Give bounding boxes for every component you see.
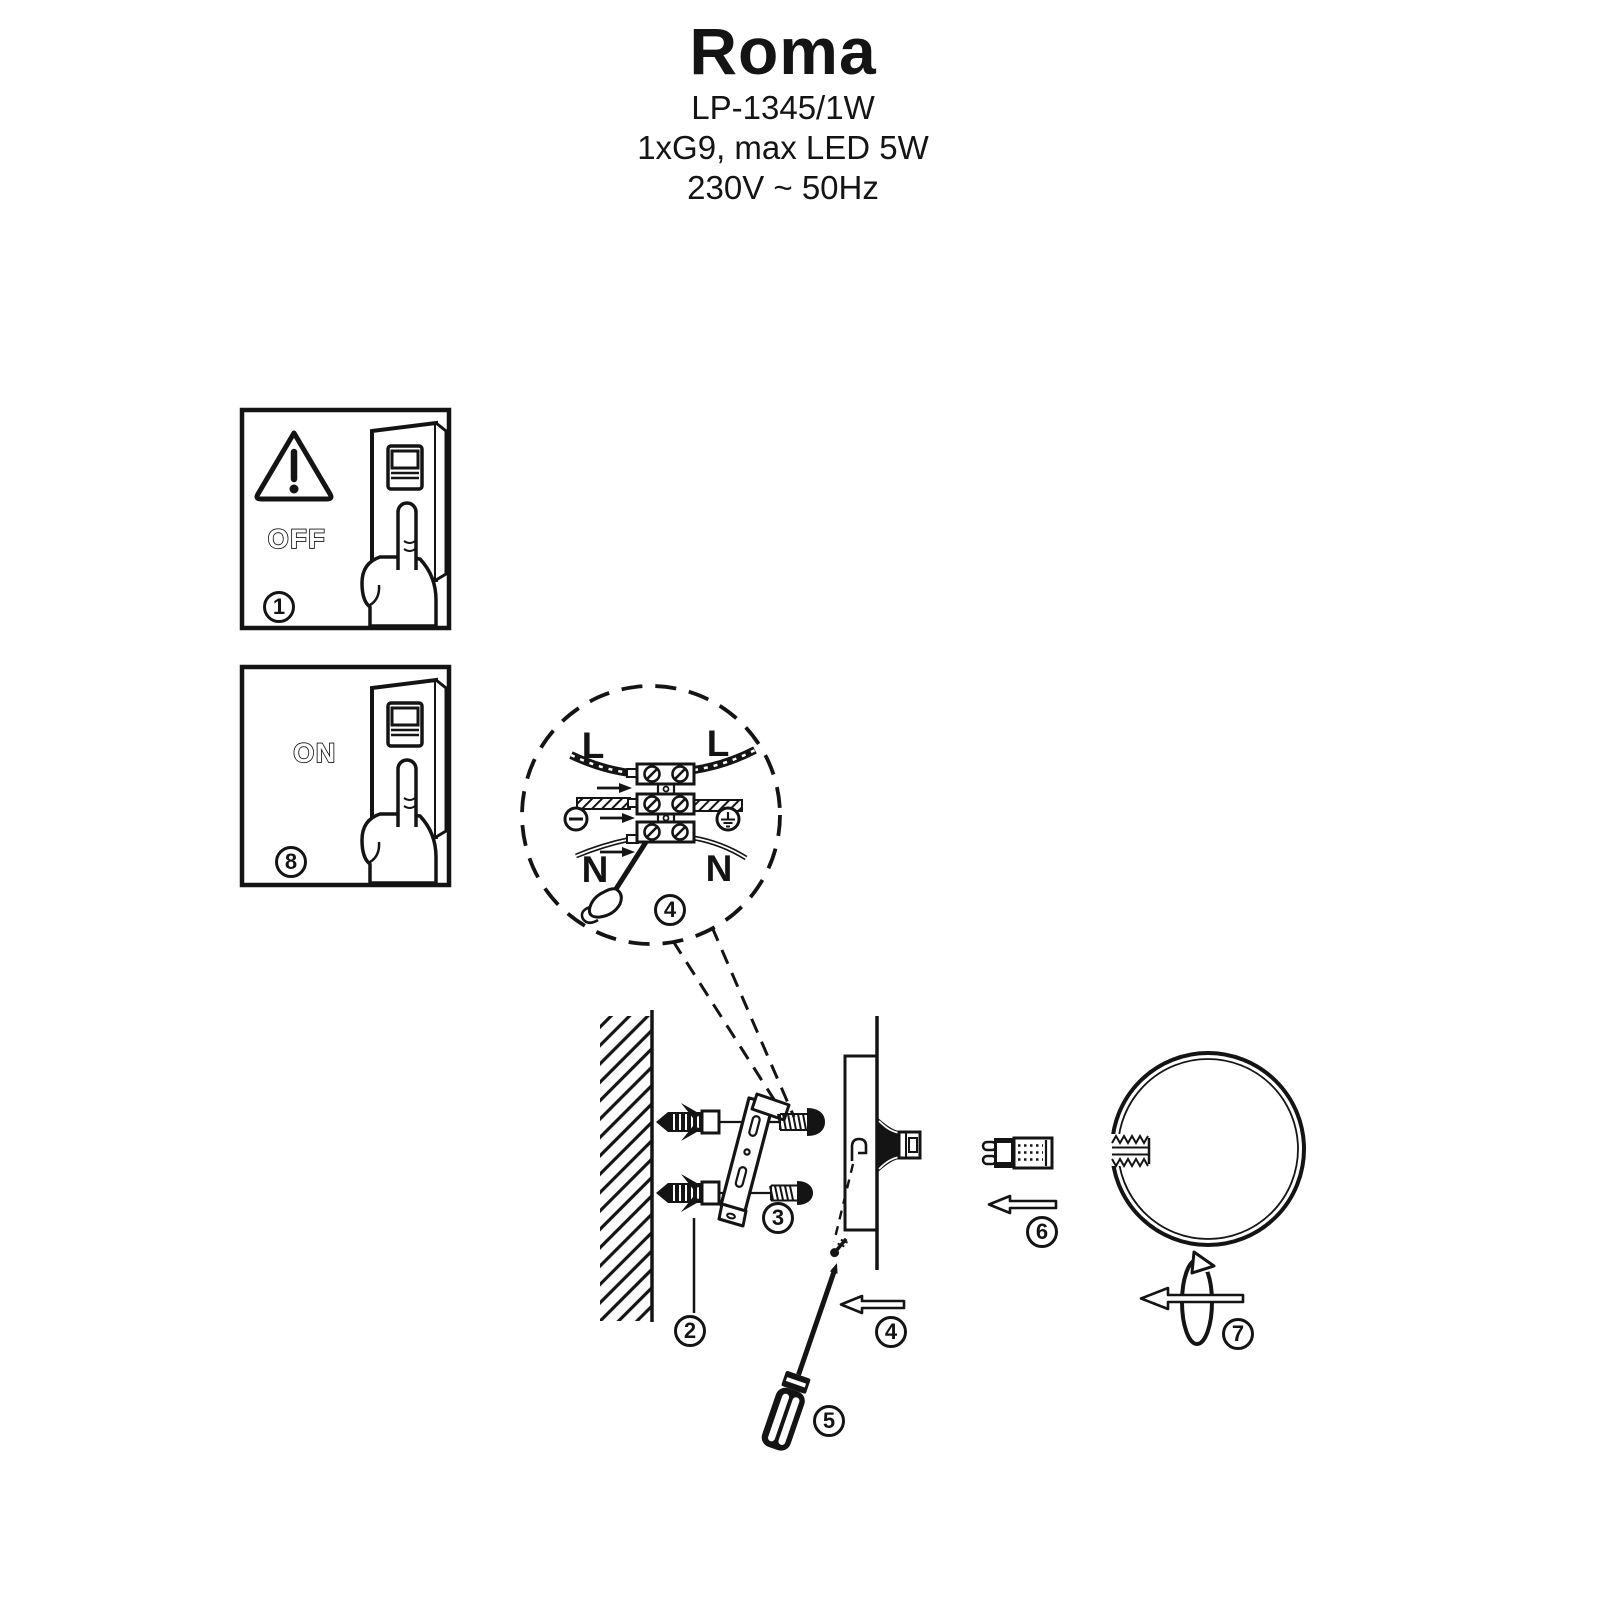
label-neutral-right: N bbox=[706, 848, 733, 889]
step-badge-off: 1 bbox=[263, 591, 295, 623]
step-badge-wiring: 4 bbox=[654, 894, 686, 926]
earth-symbol-icon bbox=[717, 808, 739, 830]
callout-line bbox=[673, 941, 782, 1112]
step-badge-shade: 7 bbox=[1222, 1318, 1254, 1350]
insert-arrow-icon bbox=[841, 1296, 904, 1313]
label-neutral-left: N bbox=[582, 849, 609, 890]
step-badge-on: 8 bbox=[275, 846, 307, 878]
step-badge-bulb: 6 bbox=[1026, 1216, 1058, 1248]
step-badge-bracket: 3 bbox=[762, 1202, 794, 1234]
power-on-panel: ON bbox=[242, 667, 449, 885]
insert-arrow-icon bbox=[989, 1196, 1056, 1213]
minus-symbol-icon bbox=[565, 808, 587, 830]
label-live-right: L bbox=[707, 723, 730, 764]
step-badge-anchor: 2 bbox=[674, 1315, 706, 1347]
label-live-left: L bbox=[582, 725, 605, 766]
installation-diagram: OFF ON bbox=[0, 0, 1600, 1600]
callout-line bbox=[712, 927, 794, 1117]
instruction-sheet: Roma LP-1345/1W 1xG9, max LED 5W 230V ~ … bbox=[0, 0, 1600, 1600]
terminal-block bbox=[637, 764, 694, 842]
wall-section bbox=[600, 1010, 652, 1322]
lamp-shade-icon bbox=[1104, 1053, 1304, 1245]
g9-socket-icon bbox=[877, 1117, 920, 1173]
step-badge-screwdriver: 5 bbox=[813, 1405, 845, 1437]
small-screw-icon bbox=[828, 1236, 849, 1259]
step-badge-screw: 4 bbox=[875, 1316, 907, 1348]
lamp-base bbox=[834, 1016, 920, 1270]
on-label: ON bbox=[293, 738, 337, 768]
g9-bulb-icon bbox=[983, 1138, 1052, 1168]
off-label: OFF bbox=[268, 524, 327, 554]
